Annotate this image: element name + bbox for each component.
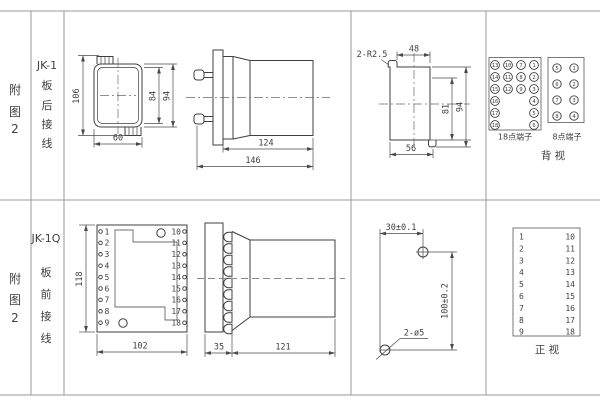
dim-hole-spacing-v: 100±0.2 [441, 283, 451, 319]
dim-body-length: 124 [258, 139, 273, 149]
mounting-hole [119, 319, 127, 327]
terminal-number: 2 [532, 75, 535, 81]
terminal-circle [183, 321, 187, 325]
wiring-char: 后 [42, 99, 53, 112]
wiring-char: 接 [41, 310, 52, 323]
dim-height: 106 [72, 88, 82, 103]
terminal-number: 3 [532, 87, 535, 93]
terminal-circle [99, 310, 103, 314]
drawing-sheet: 附 图 2 JK-1 板 后 接 线 106 84 94 [0, 0, 600, 400]
model-name: JK-1 [36, 59, 57, 72]
wiring-char: 板 [41, 265, 52, 279]
dim-inner-height: 81 [442, 104, 452, 114]
figure-char: 2 [11, 311, 19, 325]
dim-bottom: 56 [406, 144, 416, 154]
terminal-panel-front: 110211312413514615716817918 正 视 [513, 228, 580, 356]
terminal-number: 1 [532, 63, 535, 69]
wiring-char: 接 [42, 118, 53, 131]
dim-body: 121 [275, 343, 290, 353]
terminal-screw [194, 70, 204, 80]
panel-number: 15 [565, 292, 575, 301]
terminal-bump [224, 301, 232, 311]
dim-outer: 94 [163, 91, 173, 101]
row2-figure-label: 附 图 2 [9, 272, 21, 325]
panel-number: 14 [565, 280, 575, 289]
terminal-number: 4 [532, 99, 536, 105]
rear-view-label: 背 视 [541, 149, 566, 162]
terminal-number: 17 [492, 111, 499, 117]
dim-outer-height: 94 [456, 102, 466, 112]
panel-number: 6 [519, 292, 524, 301]
wiring-char: 板 [42, 78, 53, 92]
dim-hole-spacing-h: 30±0.1 [386, 223, 417, 233]
terminal-number: 17 [171, 307, 181, 316]
terminal-circle [99, 264, 103, 268]
panel-number: 12 [565, 256, 575, 265]
back-view-drawing: 106 84 94 60 [72, 56, 177, 148]
dim-plate: 35 [214, 343, 224, 353]
dim-total-length: 146 [245, 156, 260, 166]
panel-number: 18 [565, 328, 575, 337]
figure-char: 附 [9, 83, 21, 97]
terminal-circle [183, 264, 187, 268]
drill-plan-drawing: 30±0.1 100±0.2 2-ø5 [376, 223, 457, 360]
panel-number-list: 110211312413514615716817918 [519, 233, 575, 337]
front-view-label: 正 视 [535, 343, 560, 356]
terminal-bump [224, 278, 232, 288]
panel-number: 10 [565, 233, 575, 242]
terminal-number: 4 [572, 114, 576, 120]
panel-number: 16 [565, 304, 575, 313]
figure-char: 图 [9, 293, 21, 307]
dim-width: 102 [132, 342, 147, 352]
row2-model-label: JK-1Q 板 前 接 线 [31, 232, 61, 345]
terminal-circle [183, 275, 187, 279]
dim-inner: 84 [149, 91, 159, 101]
panel-number: 11 [565, 244, 575, 253]
terminal-circle [183, 310, 187, 314]
terminal-bump [224, 267, 232, 277]
panel-number: 17 [565, 316, 575, 325]
technical-drawing-canvas: 附 图 2 JK-1 板 后 接 线 106 84 94 [0, 0, 600, 400]
panel-number: 7 [519, 304, 524, 313]
terminal-bump [224, 324, 232, 334]
terminal-8-label: 8点端子 [552, 132, 581, 142]
terminal-circle [99, 275, 103, 279]
terminal-circle [99, 298, 103, 302]
terminal-number: 10 [171, 227, 181, 236]
terminal-number: 5 [555, 66, 558, 72]
terminal-number: 12 [171, 250, 181, 259]
terminal-number: 15 [492, 87, 499, 93]
terminal-screw [194, 114, 204, 124]
panel-number: 13 [565, 268, 575, 277]
terminal-18-label: 18点端子 [498, 132, 532, 142]
terminal-bump [224, 313, 232, 323]
terminal-number: 4 [105, 262, 110, 271]
terminal-circle [183, 230, 187, 234]
dim-top: 48 [409, 45, 419, 55]
row1-model-label: JK-1 板 后 接 线 [36, 59, 57, 150]
terminal-number: 3 [105, 250, 110, 259]
terminal-circle [99, 230, 103, 234]
figure-char: 附 [9, 272, 21, 286]
dim-width: 60 [113, 134, 123, 144]
terminal-number: 11 [505, 75, 512, 81]
terminal-circle [99, 287, 103, 291]
terminal-number: 15 [171, 284, 181, 293]
panel-number: 9 [519, 328, 524, 337]
side-view-drawing: 124 146 [186, 50, 330, 170]
terminal-block-8 [548, 58, 584, 123]
terminal-number: 12 [505, 87, 512, 93]
front-view-drawing: 110211312413514615716817918 118 102 [75, 225, 187, 356]
terminal-number: 18 [492, 123, 499, 129]
terminal-number: 1 [105, 227, 110, 236]
terminal-circle [183, 287, 187, 291]
panel-number: 8 [519, 316, 524, 325]
terminal-number: 14 [492, 75, 499, 81]
terminal-18-grid: 131415161718101112789123456 [491, 61, 539, 130]
terminal-bump [224, 290, 232, 300]
terminal-number: 5 [105, 273, 110, 282]
terminal-8-grid: 56781234 [553, 64, 578, 120]
terminal-number: 8 [105, 307, 110, 316]
terminal-circle [99, 253, 103, 257]
bump-column [224, 232, 232, 334]
terminal-number: 8 [555, 114, 558, 120]
terminal-number: 16 [492, 99, 499, 105]
terminal-number: 5 [532, 111, 535, 117]
figure-char: 图 [9, 105, 21, 119]
terminal-number: 6 [105, 284, 110, 293]
row1-figure-label: 附 图 2 [9, 83, 21, 136]
wiring-char: 线 [42, 136, 53, 150]
terminal-number: 13 [171, 262, 181, 271]
terminal-number: 13 [492, 63, 499, 69]
panel-number: 5 [519, 280, 524, 289]
terminal-blocks-back: 131415161718101112789123456 18点端子 567812… [489, 58, 584, 163]
panel-number: 2 [519, 244, 524, 253]
terminal-number: 10 [505, 63, 512, 69]
side-view-front-wiring: 35 121 [197, 223, 345, 357]
panel-number: 3 [519, 256, 524, 265]
wiring-char: 线 [41, 331, 52, 345]
terminal-number: 9 [105, 319, 110, 328]
terminal-number: 2 [572, 82, 575, 88]
terminal-number: 8 [519, 75, 522, 81]
terminal-number: 2 [105, 239, 110, 248]
terminal-number: 14 [171, 273, 181, 282]
panel-cutout-drawing: 48 2-R2.5 81 94 56 [357, 45, 471, 159]
terminal-number: 6 [532, 123, 535, 129]
terminal-number: 6 [555, 82, 558, 88]
inner-contour [115, 230, 177, 320]
terminal-circle [183, 253, 187, 257]
model-name: JK-1Q [31, 232, 61, 245]
figure-char: 2 [11, 122, 19, 136]
terminal-number: 1 [572, 66, 575, 72]
front-plate [205, 223, 223, 332]
panel-number: 1 [519, 233, 524, 242]
terminal-number: 3 [572, 98, 575, 104]
hole-diameter-label: 2-ø5 [404, 329, 424, 339]
terminal-number: 7 [555, 98, 558, 104]
panel-number: 4 [519, 268, 524, 277]
terminal-bump [224, 244, 232, 254]
terminal-circle [99, 241, 103, 245]
slot-radius-label: 2-R2.5 [357, 50, 388, 60]
dim-height: 118 [75, 271, 85, 286]
terminal-bump [224, 232, 232, 242]
cutout-slot-bottom [429, 140, 437, 147]
terminal-bump [224, 255, 232, 265]
terminal-number: 11 [171, 239, 181, 248]
terminal-number: 18 [171, 319, 181, 328]
terminal-number: 16 [171, 296, 181, 305]
mounting-hole [157, 229, 165, 237]
relay-body [250, 61, 313, 136]
terminal-number: 7 [105, 296, 110, 305]
terminal-number: 9 [519, 87, 522, 93]
terminal-circle [99, 321, 103, 325]
terminal-circle [183, 298, 187, 302]
terminal-number: 7 [519, 63, 522, 69]
wiring-char: 前 [41, 287, 52, 301]
terminal-circle [183, 241, 187, 245]
